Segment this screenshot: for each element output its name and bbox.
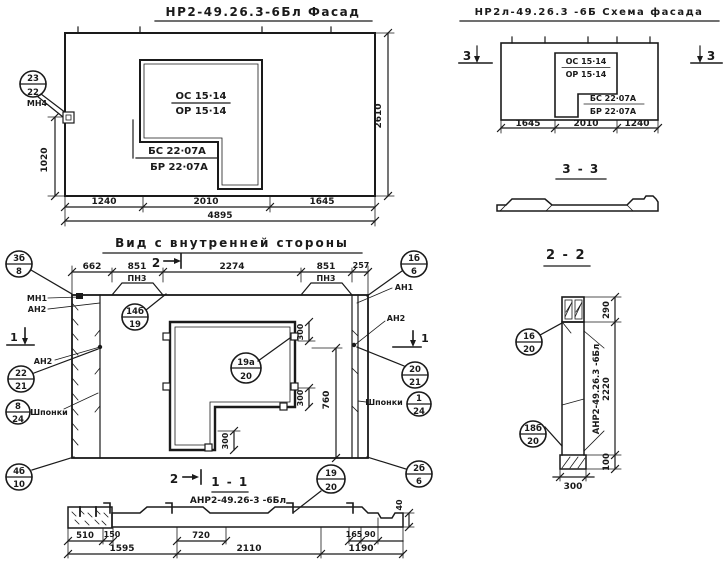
facade-dim-total: 4895 — [207, 211, 232, 221]
panel-drawing: НР2-49.26.3-6Бл Фасад ОС 15·14 ОР 15·14 … — [0, 0, 724, 571]
inner-label-shponki-left: Шпонки — [30, 408, 67, 417]
section-2-2-callout-top-leader — [540, 323, 562, 335]
inner-section1-right-arrow-head — [410, 340, 416, 347]
inner-callout-4b-sheet: 10 — [13, 480, 25, 490]
inner-anchor-dot-right — [352, 343, 356, 347]
facade-block-mark-top: БС 22·07А — [148, 146, 206, 157]
inner-callout-20-sheet: 21 — [409, 378, 421, 388]
section-2-2-callout-top-pos: 16 — [523, 332, 535, 342]
schema-opening-mark-bottom: ОР 15·14 — [566, 70, 607, 79]
section-3-3-title: 3 - 3 — [562, 162, 600, 176]
facade-title: НР2-49.26.3-6Бл Фасад — [166, 5, 361, 19]
inner-pn3-left-mark — [112, 283, 163, 295]
inner-dim-t5: 257 — [353, 261, 370, 270]
section-1-1-dim-90: 90 — [364, 530, 376, 539]
section-2-2-title: 2 - 2 — [546, 248, 586, 263]
section-2-2-body-joints — [562, 323, 584, 405]
schema-section-arrow-left-head — [474, 56, 480, 63]
facade-opening-mark-bottom: ОР 15·14 — [176, 106, 227, 117]
facade-block-mark-bottom: БР 22·07А — [150, 162, 208, 173]
inner-title: Вид с внутренней стороны — [115, 236, 349, 250]
section-2-2-dim-mid: 2220 — [602, 377, 612, 401]
facade-embed-marker — [63, 112, 74, 123]
schema-title: НР2л-49.26.3 -6Б Схема фасада — [475, 6, 704, 18]
schema-top-ticks — [512, 37, 650, 43]
embed-marker — [291, 383, 298, 390]
inner-mn1-embed-mark — [76, 293, 83, 299]
section-1-1-callout-pos: 19 — [325, 469, 337, 479]
inner-callout-22-pos: 22 — [15, 369, 27, 379]
inner-dim300a: 300 — [296, 323, 305, 340]
section-1-1-dim-b1: 1595 — [109, 544, 134, 554]
schema-dim-w1: 1645 — [515, 119, 540, 129]
section-1-1-dim-510: 510 — [76, 531, 94, 541]
inner-label-shponki-right: Шпонки — [365, 398, 402, 407]
inner-an2-left-mid-leader — [55, 347, 100, 360]
section-1-1: 1 - 1 19 20 АНР2-49.26-3 -6Бл 510 150 72… — [65, 465, 415, 558]
section-1-1-dim-720: 720 — [192, 531, 210, 541]
schema-view: НР2л-49.26.3 -6Б Схема фасада ОС 15·14 О… — [459, 6, 722, 133]
section-2-2-callout-bottom-leader — [545, 427, 562, 446]
inner-callout-1-sheet: 24 — [413, 407, 425, 417]
inner-callout-2b-leader — [367, 457, 406, 469]
section-3-3-profile-recess-lines — [500, 205, 633, 211]
embed-marker — [163, 333, 170, 340]
section-1-1-dim-b2: 2110 — [236, 544, 261, 554]
section-2-2-dim-width: 300 — [564, 482, 583, 492]
section-1-1-label: АНР2-49.26-3 -6Бл — [190, 496, 286, 506]
inner-label-an2-left-top: АН2 — [28, 305, 46, 314]
schema-section-mark-left: 3 — [463, 49, 471, 63]
facade-callout-label: МН4 — [27, 99, 48, 108]
section-1-1-left-block-anchors — [80, 507, 96, 516]
facade-dim-w2: 2010 — [193, 197, 218, 207]
inner-pn3-right-mark — [301, 283, 352, 295]
inner-label-an2-left-mid: АН2 — [34, 357, 52, 366]
inner-section1-right-label: 1 — [421, 332, 429, 345]
section-1-1-dim-40: 40 — [395, 499, 404, 511]
inner-callout-14b-leader — [146, 294, 166, 310]
inner-key-marks — [95, 330, 358, 412]
inner-dim300c: 300 — [221, 432, 230, 449]
schema-block-mark-bottom: БР 22·07А — [590, 107, 637, 116]
inner-callout-2b-sheet: 6 — [416, 477, 422, 487]
facade-dim1020-ext — [48, 117, 65, 196]
section-2-2-panel-label: АНР2-49.26.3 -6Бл — [592, 344, 602, 435]
inner-view: Вид с внутренней стороны 2 662 851 2274 … — [6, 236, 432, 490]
section-1-1-callout-leader — [294, 491, 321, 512]
section-1-1-callout-sheet: 20 — [325, 483, 337, 493]
schema-dim-w2: 2010 — [573, 119, 598, 129]
section-2-2-callout-bottom-pos: 18б — [524, 423, 542, 434]
inner-an2-right-leader — [356, 321, 385, 344]
inner-callout-19a-leader — [258, 338, 290, 361]
inner-dim-t4: 851 — [317, 262, 336, 272]
inner-section2-top-label: 2 — [152, 256, 160, 270]
section-1-1-dim-165: 165 — [346, 530, 363, 539]
inner-callout-19a-sheet: 20 — [240, 372, 252, 382]
section-1-1-profile — [112, 507, 403, 527]
inner-label-an2-right: АН2 — [387, 314, 405, 323]
inner-callout-1b-pos: 1б — [408, 253, 420, 264]
inner-label-an1: АН1 — [395, 283, 414, 292]
schema-block-mark-top: БС 22·07А — [590, 94, 637, 103]
facade-dim-w3: 1645 — [309, 197, 334, 207]
inner-dim-t1: 662 — [83, 262, 102, 272]
schema-section-mark-right: 3 — [707, 49, 715, 63]
inner-opening-embed-markers — [163, 333, 298, 451]
section-2-2-callout-bottom-sheet: 20 — [527, 437, 539, 447]
facade-opening-mark-top: ОС 15·14 — [176, 91, 227, 102]
section-1-1-dim-150: 150 — [104, 530, 121, 539]
inner-callout-22-sheet: 21 — [15, 382, 27, 392]
inner-dim-t2: 851 — [128, 262, 147, 272]
section-1-1-title: 1 - 1 — [211, 475, 249, 489]
schema-section-arrow-right-head — [697, 56, 703, 63]
inner-section1-left-arrow-head — [22, 338, 28, 345]
inner-pn3-right-label: ПН3 — [317, 274, 336, 283]
inner-callout-3b-sheet: 8 — [16, 267, 22, 277]
section-2-2-top-anchor-hatch — [565, 302, 582, 317]
embed-marker — [163, 383, 170, 390]
inner-callout-20-pos: 20 — [409, 365, 421, 375]
inner-callout-20-leader — [357, 347, 404, 366]
inner-shponki-left-leader — [64, 393, 98, 409]
section-2-2-width-dim-ext — [560, 469, 586, 481]
section-3-3: 3 - 3 — [497, 162, 658, 211]
inner-callout-14b-pos: 14б — [126, 306, 144, 317]
inner-section1-left-label: 1 — [10, 331, 18, 344]
inner-callout-1b-sheet: 6 — [411, 267, 417, 277]
facade-dim-height: 2610 — [374, 103, 384, 128]
section-2-2-dim-bot: 100 — [602, 453, 612, 471]
embed-marker — [280, 403, 287, 410]
inner-callout-14b-sheet: 19 — [129, 320, 141, 330]
inner-callout-3b-leader — [31, 270, 72, 294]
inner-callout-4b-pos: 4б — [13, 466, 25, 477]
section-3-3-profile — [497, 196, 658, 211]
section-1-1-dim-b3: 1190 — [348, 544, 373, 554]
inner-label-mn1: МН1 — [27, 294, 48, 303]
inner-pn3-left-label: ПН3 — [128, 274, 147, 283]
section-2-2-dim-top: 290 — [602, 301, 612, 319]
inner-callout-19a-pos: 19а — [237, 358, 255, 368]
inner-callout-3b-pos: 3б — [13, 253, 25, 264]
section-2-2: 2 - 2 АНР2-49.26.3 -6Бл 290 2220 100 300… — [516, 248, 621, 492]
drawing-sheet: НР2-49.26.3-6Бл Фасад ОС 15·14 ОР 15·14 … — [0, 0, 724, 571]
inner-dim760: 760 — [322, 391, 332, 410]
inner-dim300b: 300 — [296, 389, 305, 406]
inner-callout-8-pos: 8 — [15, 402, 21, 412]
inner-callout-8-sheet: 24 — [12, 415, 24, 425]
inner-section2-bottom-arrow — [192, 474, 199, 480]
inner-section2-top-arrow — [174, 258, 181, 264]
schema-opening-mark-top: ОС 15·14 — [566, 57, 607, 66]
facade-callout-pos: 23 — [27, 74, 39, 84]
inner-callout-4b-leader — [32, 457, 74, 470]
inner-section2-bottom-label: 2 — [170, 472, 178, 486]
schema-dim-w3: 1240 — [624, 119, 649, 129]
inner-dim-t3: 2274 — [219, 262, 244, 272]
inner-panel-outline — [72, 295, 368, 458]
inner-mn1-an2-leaders — [48, 297, 100, 309]
inner-callout-2b-pos: 2б — [413, 463, 425, 474]
inner-opening-inner-line — [175, 327, 290, 445]
facade-dim-marker-height: 1020 — [40, 147, 50, 172]
facade-dim-w1: 1240 — [91, 197, 116, 207]
section-2-2-body — [562, 322, 584, 455]
facade-view: НР2-49.26.3-6Бл Фасад ОС 15·14 ОР 15·14 … — [20, 5, 394, 226]
section-1-1-left-block-stipple — [72, 510, 108, 525]
section-2-2-bottom-block-hatch — [562, 457, 585, 468]
section-2-2-callout-top-sheet: 20 — [523, 345, 535, 355]
inner-callout-1-pos: 1 — [416, 394, 422, 404]
embed-marker — [205, 444, 212, 451]
